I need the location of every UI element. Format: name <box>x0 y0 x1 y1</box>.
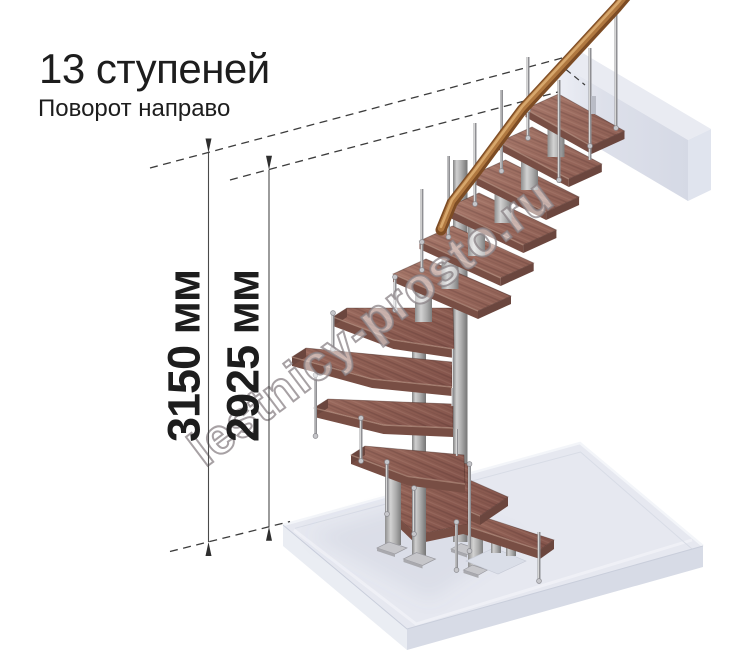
svg-text:3150 мм: 3150 мм <box>159 270 210 442</box>
svg-text:2925 мм: 2925 мм <box>218 270 269 442</box>
svg-text:Поворот направо: Поворот направо <box>38 95 230 122</box>
svg-text:13 ступеней: 13 ступеней <box>39 45 270 92</box>
